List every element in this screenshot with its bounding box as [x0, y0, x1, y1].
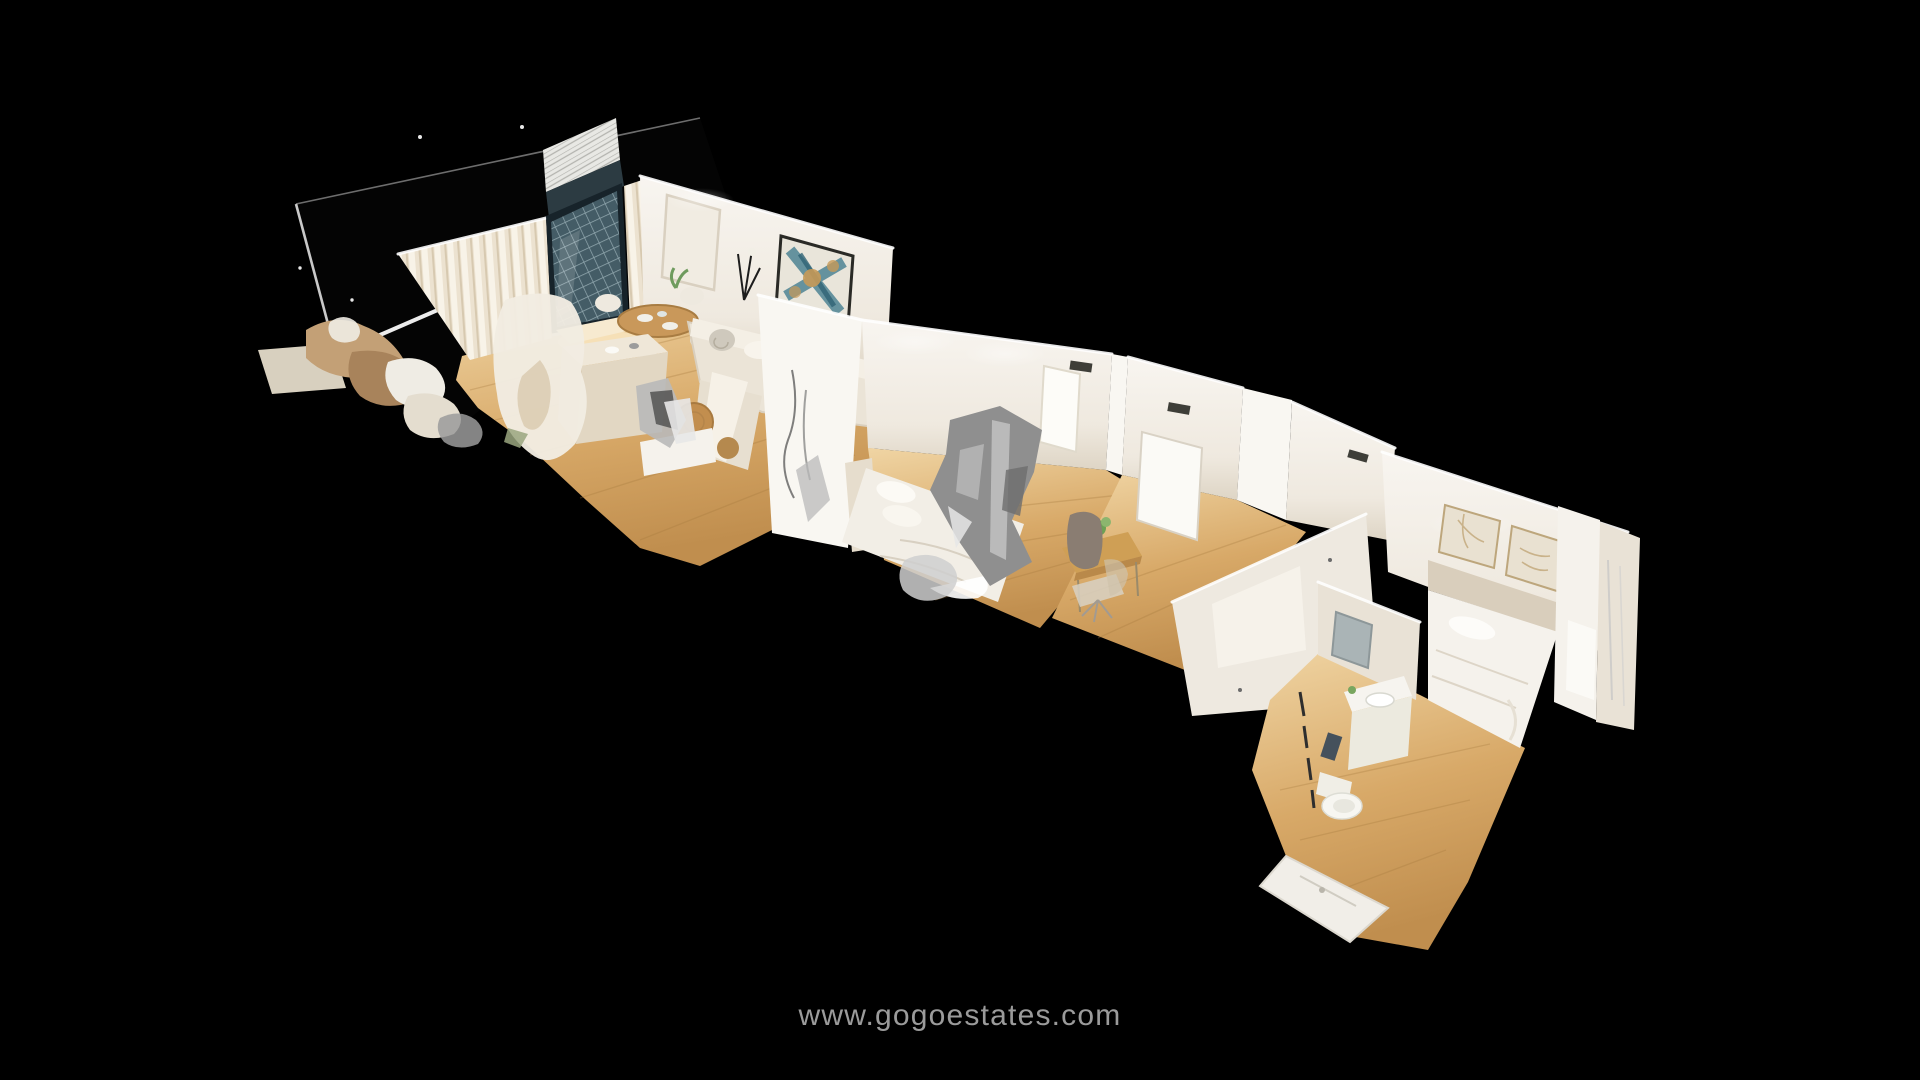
dollhouse-canvas[interactable] — [0, 0, 1920, 1080]
door-opening — [1040, 366, 1080, 452]
tour-viewport[interactable]: www.gogoestates.com — [0, 0, 1920, 1080]
watermark: www.gogoestates.com — [0, 999, 1920, 1033]
glitch-figure — [1067, 512, 1103, 569]
soap-accent — [1348, 686, 1356, 694]
hallway-wall-step — [1237, 388, 1292, 520]
wardrobe — [1554, 506, 1640, 730]
coffee-table-small — [717, 437, 739, 459]
hallway-door-frame — [1137, 432, 1202, 540]
door-panel — [1566, 620, 1596, 700]
master-suite[interactable] — [1252, 452, 1640, 950]
vanity-sink — [1344, 676, 1412, 770]
cut-wall-living-bedroom — [758, 295, 862, 548]
